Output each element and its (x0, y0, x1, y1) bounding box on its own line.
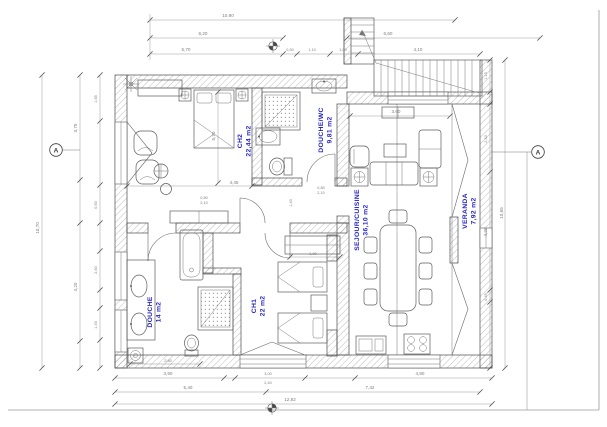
interior-walls (127, 88, 458, 356)
dim-top-a: 5,70 (182, 47, 191, 52)
dim-left-s1: 1,65 (94, 95, 98, 102)
room-label-ch2: CH2 22,44 m2 (237, 125, 253, 156)
room-label-ch1: CH1 22 m2 (251, 296, 267, 317)
floor-plan-sheet: A A CH2 22,44 m2 DOUCHE/WC 9,81 m2 DOUCH… (0, 0, 607, 427)
sink-icon (130, 275, 147, 297)
room-label-sejour: SEJOUR/CUISINE 36,10 m2 (354, 189, 370, 251)
room-label-douche-wc: DOUCHE/WC 9,81 m2 (318, 107, 334, 152)
svg-text:DOUCHE/WC: DOUCHE/WC (318, 107, 325, 152)
svg-text:22,44 m2: 22,44 m2 (246, 125, 253, 156)
dim-bottom-r1a: 3,90 (164, 371, 173, 376)
nightstand-icon (179, 89, 191, 101)
dim-top-total: 10,90 (222, 13, 234, 18)
svg-text:9,81 m2: 9,81 m2 (327, 116, 334, 143)
dim-right-s3: 4,20 (483, 227, 488, 236)
dim-right-total: 10,65 (499, 207, 504, 219)
dimension-labels: 10,90 6,20 6,60 5,70 0,50 1,10 1,00 4,10… (35, 13, 504, 402)
dim-top-right: 6,60 (384, 31, 393, 36)
dim-left-upper: 3,75 (73, 123, 78, 132)
armchair-icon (136, 160, 159, 184)
dining-table-icon (364, 210, 432, 326)
dim-door-width: 0,80 (317, 186, 324, 190)
dim-bottom-r1b: 3,00 (264, 372, 271, 376)
dim-right-s4: 0,45 (484, 293, 488, 300)
dim-douche-width: 2,80 (164, 359, 171, 363)
dim-left-s3: 2,60 (94, 266, 98, 273)
nightstand-icon (236, 89, 248, 101)
dim-left-s2: 0,50 (94, 201, 98, 208)
dim-top-e: 4,10 (414, 47, 423, 52)
bathtub-icon (180, 230, 203, 280)
dim-bottom-r2b: 7,42 (366, 385, 375, 390)
dim-left-s4: 1,45 (94, 321, 98, 328)
dim-bottom-r1b2: 2,40 (264, 381, 271, 385)
dim-ch1-wardrobe: 1,80 (309, 252, 316, 256)
dim-left-total: 10,70 (35, 222, 40, 234)
section-label: A (536, 150, 541, 157)
section-label: A (54, 148, 59, 155)
oven-icon (356, 336, 386, 354)
dim-bottom-r1c: 4,90 (416, 371, 425, 376)
toilet-icon (185, 335, 199, 356)
bed-single-icon (278, 313, 327, 343)
benchmark-icon (265, 401, 279, 415)
exterior-walls (115, 18, 492, 368)
section-marker-right: A (492, 146, 544, 159)
sheet-frame (8, 10, 599, 410)
side-table-icon (420, 168, 437, 186)
sofa-icon (370, 162, 418, 185)
sink-icon (130, 313, 147, 335)
dim-door-height: 2,10 (317, 191, 324, 195)
dim-ch2-height: 5,70 (211, 131, 216, 140)
room-label-veranda: VERANDA 7,92 m2 (462, 193, 478, 229)
section-marker-left: A (50, 144, 80, 157)
svg-text:VERANDA: VERANDA (462, 193, 469, 229)
shower-icon (198, 287, 233, 330)
dim-hall: 1,40 (289, 199, 293, 206)
ch2-furniture (123, 76, 248, 195)
douche-fixtures (127, 230, 233, 363)
svg-text:SEJOUR/CUISINE: SEJOUR/CUISINE (354, 189, 361, 251)
dim-left-lower: 4,20 (73, 282, 78, 291)
dim-right-s2: 2,40 (484, 135, 488, 142)
stool-icon (161, 184, 172, 195)
dim-door-width: 0,80 (200, 196, 207, 200)
svg-text:22 m2: 22 m2 (260, 296, 267, 317)
dim-sejour-width: 3,60 (392, 109, 401, 114)
stove-icon (404, 334, 430, 354)
hall-cabinet (170, 211, 228, 223)
svg-text:CH2: CH2 (237, 134, 244, 149)
dim-bottom-r2a: 5,40 (184, 385, 193, 390)
dim-top-c: 1,10 (308, 48, 315, 52)
svg-text:36,10 m2: 36,10 m2 (363, 204, 370, 235)
shower-icon (262, 92, 300, 130)
svg-text:7,92 m2: 7,92 m2 (471, 197, 478, 224)
toilet-icon (270, 158, 293, 175)
round-table-icon (154, 164, 168, 178)
staircase (344, 18, 482, 96)
armchair-icon (350, 146, 369, 167)
north-star-icon (123, 76, 139, 92)
dim-bottom-total: 12,82 (284, 397, 296, 402)
floor-plan-drawing: A A CH2 22,44 m2 DOUCHE/WC 9,81 m2 DOUCH… (0, 0, 607, 427)
svg-text:14 m2: 14 m2 (156, 302, 163, 323)
benchmark-icon (266, 39, 280, 53)
svg-text:CH1: CH1 (251, 299, 258, 314)
dim-top-b: 0,50 (286, 48, 293, 52)
loveseat-icon (419, 130, 441, 168)
coffee-table-icon (384, 144, 406, 157)
bed-single-icon (278, 262, 327, 292)
dim-top-d: 1,00 (339, 48, 346, 52)
nightstand-icon (311, 295, 327, 311)
dim-right-s1: 1,15 (484, 72, 488, 79)
dim-top-left: 6,20 (199, 31, 208, 36)
dim-ch2-width: 4,45 (230, 180, 239, 185)
svg-text:DOUCHE: DOUCHE (147, 296, 154, 327)
dim-door-height: 2,10 (200, 201, 207, 205)
side-table-icon (351, 168, 368, 186)
